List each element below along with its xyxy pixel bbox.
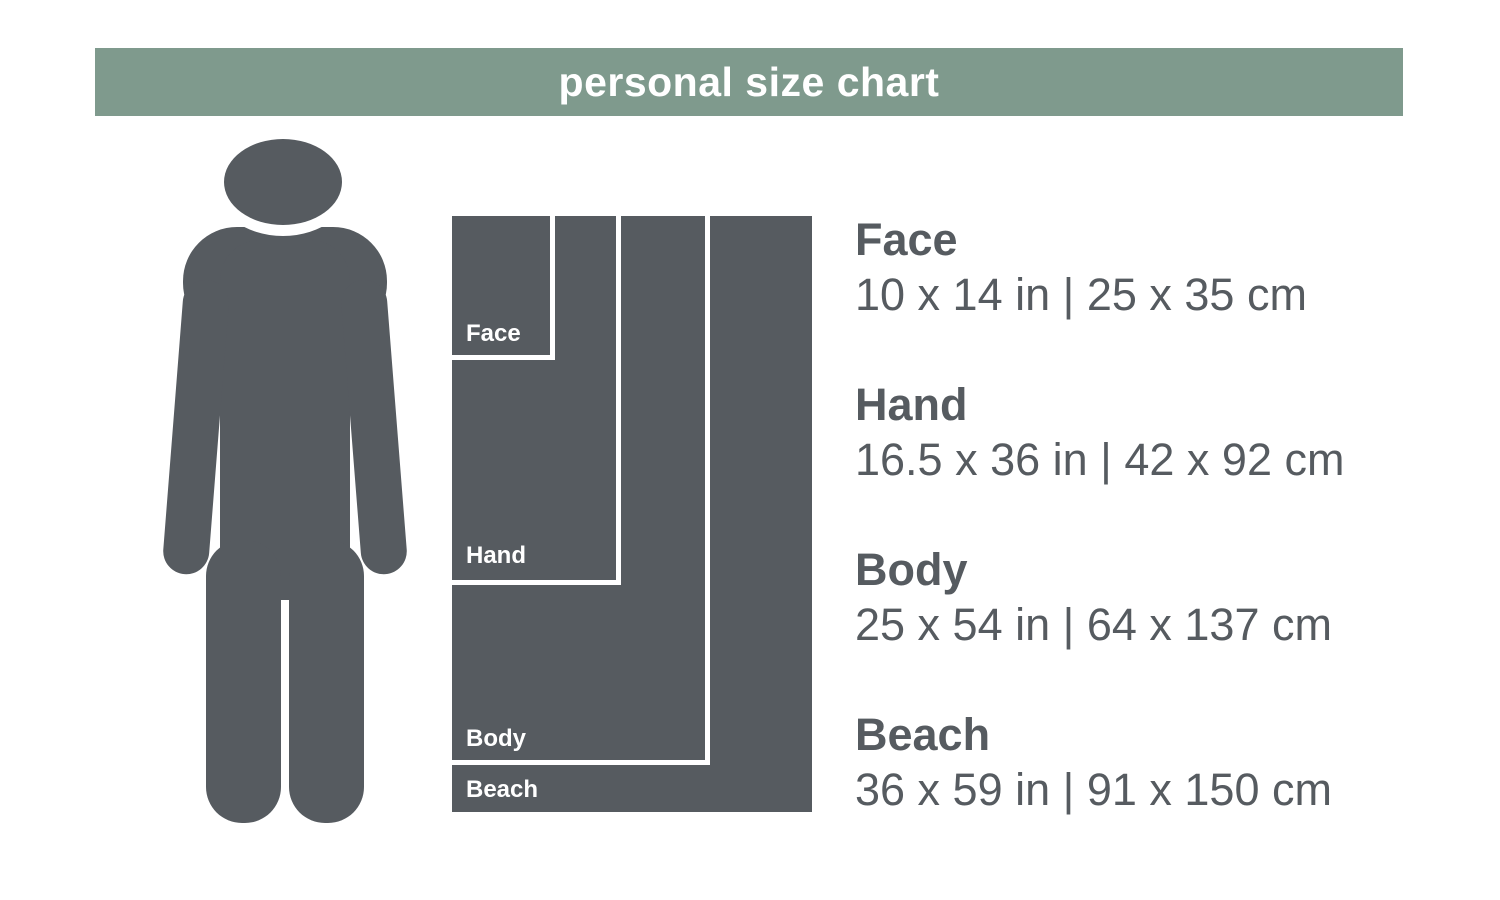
legend-beach-title: Beach [855, 709, 1332, 761]
body-rect-label: Body [466, 727, 526, 751]
legend-body-title: Body [855, 544, 1332, 596]
face-rect-label: Face [466, 322, 521, 346]
legend-entry-hand: Hand 16.5 x 36 in | 42 x 92 cm [855, 379, 1344, 487]
hand-rect-label: Hand [466, 544, 526, 568]
title-bar: personal size chart [95, 48, 1403, 116]
legend-entry-face: Face 10 x 14 in | 25 x 35 cm [855, 214, 1307, 322]
person-head [224, 139, 342, 225]
legend-entry-body: Body 25 x 54 in | 64 x 137 cm [855, 544, 1332, 652]
person-left-leg [206, 540, 281, 823]
person-right-leg [289, 540, 364, 823]
personal-size-chart-infographic: personal size chart Face Hand Body Beach [0, 0, 1500, 900]
legend-face-dimensions: 10 x 14 in | 25 x 35 cm [855, 268, 1307, 322]
legend-body-dimensions: 25 x 54 in | 64 x 137 cm [855, 598, 1332, 652]
size-comparison-diagram: Face Hand Body Beach [452, 216, 812, 812]
beach-rect-label: Beach [466, 778, 538, 802]
legend-entry-beach: Beach 36 x 59 in | 91 x 150 cm [855, 709, 1332, 817]
legend-beach-dimensions: 36 x 59 in | 91 x 150 cm [855, 763, 1332, 817]
legend-hand-title: Hand [855, 379, 1344, 431]
person-icon [145, 125, 475, 835]
legend-hand-dimensions: 16.5 x 36 in | 42 x 92 cm [855, 433, 1344, 487]
page-title: personal size chart [559, 59, 940, 106]
legend-face-title: Face [855, 214, 1307, 266]
